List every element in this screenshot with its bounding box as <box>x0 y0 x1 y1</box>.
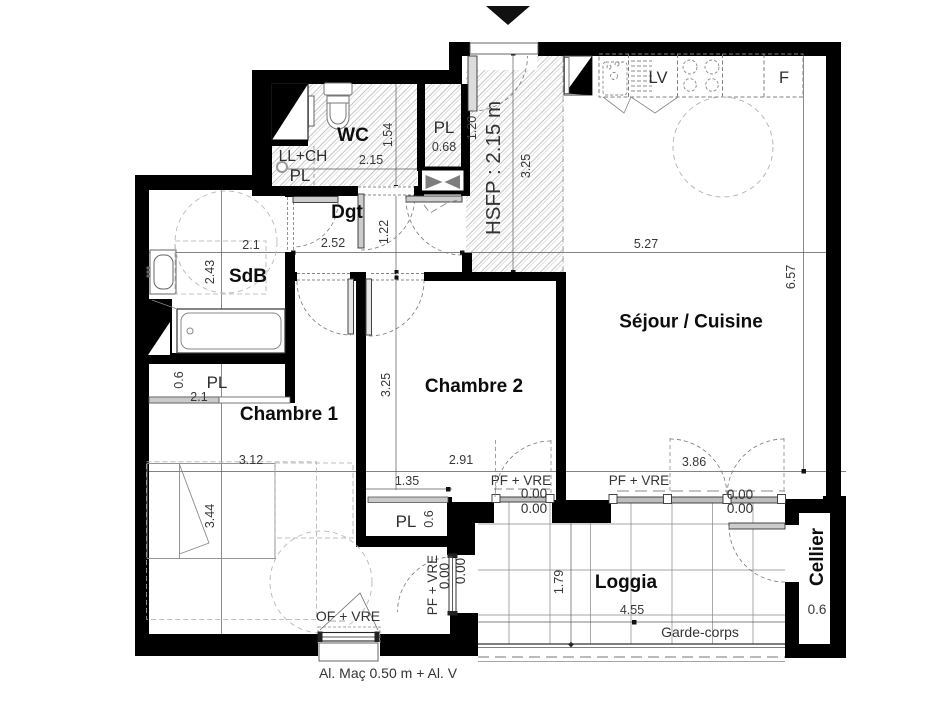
svg-text:2.43: 2.43 <box>203 260 217 284</box>
svg-text:5.27: 5.27 <box>634 237 658 251</box>
svg-text:2.15: 2.15 <box>359 153 383 167</box>
svg-text:3.86: 3.86 <box>682 455 706 469</box>
svg-text:Chambre 2: Chambre 2 <box>425 376 523 397</box>
svg-text:3.25: 3.25 <box>519 154 533 178</box>
svg-text:Cellier: Cellier <box>807 527 828 586</box>
svg-text:Al. Maç 0.50 m + Al. V: Al. Maç 0.50 m + Al. V <box>319 665 458 681</box>
svg-text:0.6: 0.6 <box>808 602 827 617</box>
svg-text:1.20: 1.20 <box>465 116 479 140</box>
svg-text:2.1: 2.1 <box>242 238 259 252</box>
svg-text:Garde-corps: Garde-corps <box>661 624 739 640</box>
svg-text:LV: LV <box>649 69 668 87</box>
svg-text:Chambre 1: Chambre 1 <box>240 404 339 425</box>
svg-text:0.00: 0.00 <box>727 487 753 502</box>
svg-text:HSFP : 2.15 m: HSFP : 2.15 m <box>482 101 505 235</box>
svg-text:3.25: 3.25 <box>379 373 393 397</box>
svg-text:2.91: 2.91 <box>449 453 473 467</box>
svg-text:Dgt: Dgt <box>331 202 363 223</box>
svg-text:F: F <box>779 69 789 87</box>
svg-text:0.00: 0.00 <box>437 563 452 589</box>
svg-text:0.00: 0.00 <box>521 501 547 516</box>
svg-text:PF + VRE: PF + VRE <box>609 473 669 488</box>
svg-text:0.6: 0.6 <box>172 371 186 388</box>
svg-text:OF + VRE: OF + VRE <box>316 608 380 624</box>
svg-text:1.22: 1.22 <box>377 220 391 244</box>
svg-text:0.00: 0.00 <box>521 486 547 501</box>
svg-text:PL: PL <box>290 166 311 185</box>
svg-text:0.6: 0.6 <box>422 510 436 527</box>
svg-text:PL: PL <box>434 118 455 137</box>
svg-text:1.79: 1.79 <box>552 570 566 594</box>
svg-text:3.44: 3.44 <box>203 504 217 528</box>
svg-text:3.12: 3.12 <box>239 453 263 467</box>
svg-text:SdB: SdB <box>229 266 267 287</box>
svg-text:6.57: 6.57 <box>784 265 798 289</box>
svg-text:1.54: 1.54 <box>381 123 395 147</box>
svg-text:2.52: 2.52 <box>321 236 345 250</box>
svg-text:WC: WC <box>337 125 369 146</box>
svg-text:PL: PL <box>207 373 228 392</box>
svg-text:0.00: 0.00 <box>727 501 753 516</box>
svg-text:4.55: 4.55 <box>620 603 644 617</box>
svg-text:PL: PL <box>396 512 417 531</box>
svg-text:LL+CH: LL+CH <box>279 148 328 165</box>
svg-text:0.00: 0.00 <box>453 558 468 584</box>
svg-text:Séjour / Cuisine: Séjour / Cuisine <box>619 312 763 333</box>
svg-text:1.35: 1.35 <box>395 474 419 488</box>
svg-text:2.1: 2.1 <box>190 390 207 404</box>
svg-text:Loggia: Loggia <box>595 572 658 593</box>
svg-text:0.68: 0.68 <box>432 140 456 154</box>
